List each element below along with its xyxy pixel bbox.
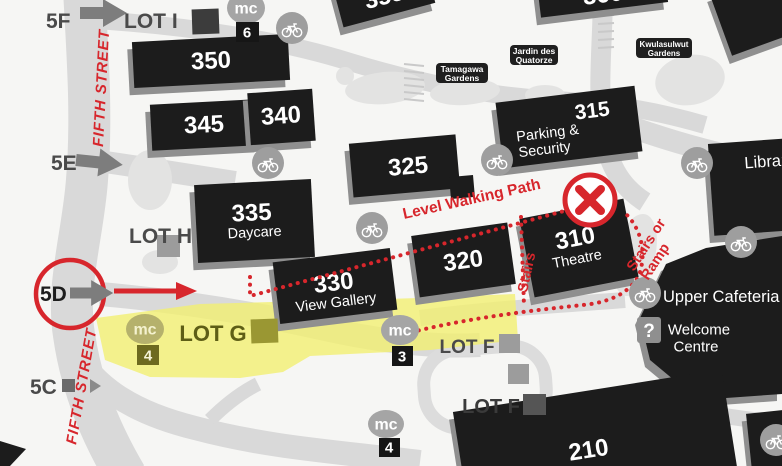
lot-h-label: LOT H [129,225,192,248]
kwulasulwut-line1: Kwulasulwut [640,40,689,49]
building-345-number: 345 [183,110,224,139]
welcome-centre-line2: Centre [673,339,718,356]
building-335-number: 335 [231,199,272,228]
bike-parking-icon [276,12,308,44]
upper-cafeteria-name: Upper Cafeteria [663,288,780,306]
lot-i-label: LOT I [124,10,178,33]
street-point-5c: 5C [30,376,57,399]
bike-parking-icon [252,147,284,179]
tamagawa-gardens-label: Tamagawa Gardens [436,63,488,83]
mc-label: mc [234,1,257,18]
building-bottom-left-corner [0,441,26,466]
closed-x-icon [565,175,615,225]
building-355: 355 [327,0,437,35]
building-315-number: 315 [573,97,611,124]
building-325: 325 [344,134,461,205]
garden-blob [336,67,354,85]
building-335-name: Daycare [227,224,282,243]
campus-map-canvas: 350 355 360 345 340 [0,0,782,466]
building-top-right [705,0,782,64]
building-340-number: 340 [260,101,302,131]
bike-parking-icon [356,212,388,244]
lot-f-mid-square [508,364,529,384]
mc-label: mc [133,322,156,339]
lot-g-label: LOT G [179,321,246,346]
building-210-number: 210 [567,434,611,466]
building-325-number: 325 [387,151,429,181]
building-350: 350 [127,34,291,95]
building-320-number: 320 [441,245,484,277]
plaza-blob [128,150,172,210]
lot-g-square [251,319,279,344]
building-340: 340 [242,89,316,153]
garden-blob [651,49,729,110]
kwulasulwut-line2: Gardens [648,49,681,58]
building-320: 320 [406,222,517,305]
building-345: 345 [145,99,260,158]
bike-parking-icon [725,226,757,258]
mc-4b-number: 4 [385,440,394,457]
welcome-centre-question-icon: ? [637,317,661,343]
building-library-name: Library [744,151,782,173]
bike-parking-icon [481,144,513,176]
mc-6-number: 6 [243,25,251,42]
jardin-des-quatorze-label: Jardin des Quatorze [510,45,558,65]
bike-parking-icon [681,147,713,179]
street-point-5f: 5F [46,10,71,33]
mc-label: mc [388,323,411,340]
building-350-number: 350 [190,46,231,75]
lot-f-lower-label: LOT F [462,396,520,418]
question-mark: ? [643,321,655,342]
bike-parking-icon [629,277,661,309]
street-point-5e: 5E [51,152,77,175]
road-branch-lot-g [210,384,258,420]
campus-map: 350 355 360 345 340 [0,0,782,466]
tamagawa-line2: Gardens [445,73,480,83]
lot-f-upper-square [499,334,520,353]
lot-i-square [192,9,220,35]
building-335-daycare: 335 Daycare [189,179,315,270]
mc-3-number: 3 [398,349,406,366]
welcome-centre-line1: Welcome [668,322,730,339]
mc-marker-3: mc 3 [381,315,419,366]
kwulasulwut-gardens-label: Kwulasulwut Gardens [636,38,692,58]
mc-4a-number: 4 [144,348,153,365]
lot-f-upper-label: LOT F [440,337,495,358]
lot-f-lower-square [523,394,546,415]
mc-label: mc [374,417,397,434]
jardin-line2: Quatorze [516,55,553,65]
street-point-5d: 5D [40,283,67,306]
